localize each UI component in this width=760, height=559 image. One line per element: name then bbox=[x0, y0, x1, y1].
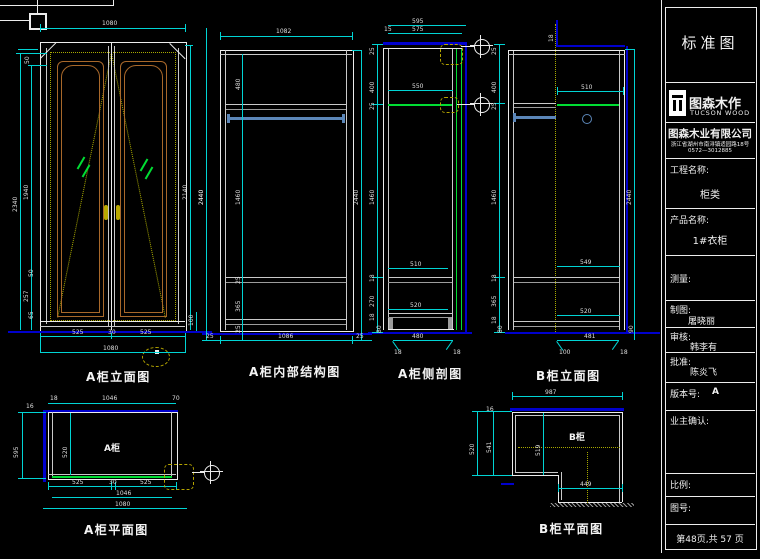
dim-text: 15 bbox=[384, 27, 392, 33]
dim-text: 365 bbox=[236, 301, 242, 312]
version-label: 版本号: bbox=[670, 387, 700, 400]
room-label-a: A柜 bbox=[104, 441, 120, 454]
drawing-label-elevation-b: B柜立面图 bbox=[536, 367, 601, 384]
shelf bbox=[388, 313, 452, 314]
door-handle bbox=[104, 205, 108, 220]
dim-text: 510 bbox=[410, 262, 421, 268]
dim-text: 1082 bbox=[276, 29, 291, 35]
dim-text: 520 bbox=[63, 447, 69, 458]
dim-text: 595 bbox=[14, 447, 20, 458]
dim-text: 90 bbox=[629, 325, 635, 333]
detail-callout-circle bbox=[204, 465, 220, 481]
dim-text: 520 bbox=[580, 309, 591, 315]
review-value: 韩李有 bbox=[690, 340, 717, 353]
dim-text: 1080 bbox=[103, 346, 118, 352]
dim-text: 1046 bbox=[116, 491, 131, 497]
shelf bbox=[514, 321, 619, 322]
dim-text: 1460 bbox=[236, 190, 242, 205]
dim-text: 65 bbox=[29, 311, 35, 319]
dim-text: 2440 bbox=[354, 190, 360, 205]
dim-text: 18 bbox=[492, 316, 498, 324]
hanging-rod bbox=[228, 117, 344, 120]
dim-text: 525 bbox=[140, 330, 151, 336]
drawing-label-section-a: A柜侧剖图 bbox=[398, 365, 463, 382]
detail-box bbox=[164, 464, 194, 490]
dim-text: 520 bbox=[470, 444, 476, 455]
dim-text: 18 bbox=[549, 34, 555, 42]
dim-text: 18 bbox=[394, 350, 402, 356]
cad-sheet: 1080 50 1940 2340 50 257 65 2140 2440 10… bbox=[0, 0, 760, 559]
brand-sub: TUCSON WOOD bbox=[690, 109, 750, 117]
dim-text: 1080 bbox=[115, 502, 130, 508]
shelf bbox=[226, 319, 346, 320]
dim-text: 25 bbox=[356, 334, 364, 340]
company-address: 浙江省湖州市南浔镇适园路18号 bbox=[665, 140, 755, 148]
dim-text: 18 bbox=[620, 350, 628, 356]
dim-text: 987 bbox=[545, 390, 556, 396]
dim-text: 30 bbox=[108, 330, 116, 336]
dim-text: 25 bbox=[370, 102, 376, 110]
company-phone: 0572—3012885 bbox=[665, 148, 755, 154]
dim-text: 18 bbox=[50, 396, 58, 402]
shelf bbox=[514, 103, 556, 104]
dim-text: 2440 bbox=[627, 190, 633, 205]
shelf bbox=[388, 277, 452, 278]
dim-text: 550 bbox=[412, 84, 423, 90]
center-dashed-line bbox=[555, 24, 556, 332]
dim-text: 525 bbox=[140, 480, 151, 486]
dim-text: 25 bbox=[236, 276, 242, 284]
approve-label: 批准: bbox=[670, 355, 691, 368]
shelf bbox=[226, 104, 346, 105]
dim-text: 16 bbox=[26, 404, 34, 410]
dim-text: 25 bbox=[370, 47, 376, 55]
floor-hatch bbox=[550, 503, 634, 507]
drawing-no-label: 图号: bbox=[670, 501, 691, 514]
dim-text: 365 bbox=[492, 296, 498, 307]
drawing-label-plan-a: A柜平面图 bbox=[84, 521, 149, 538]
review-label: 审核: bbox=[670, 330, 691, 343]
tucson-logo-icon bbox=[669, 90, 686, 116]
dim-text: 519 bbox=[536, 445, 542, 456]
shelf bbox=[514, 277, 619, 278]
owner-confirm-label: 业主确认: bbox=[670, 414, 709, 427]
hanging-rod bbox=[514, 116, 556, 119]
dim-text: 100 bbox=[189, 315, 195, 326]
measure-label: 测量: bbox=[670, 272, 691, 285]
dim-text: 80 bbox=[377, 325, 383, 333]
dim-text: 18 bbox=[453, 350, 461, 356]
dim-text: 25 bbox=[492, 102, 498, 110]
dim-text: 25 bbox=[236, 325, 242, 333]
dim-text: 30 bbox=[109, 480, 117, 486]
dim-text: 1940 bbox=[24, 185, 30, 200]
dim-text: 449 bbox=[580, 482, 591, 488]
detail-callout-circle bbox=[474, 97, 490, 113]
dim-text: 400 bbox=[492, 82, 498, 93]
dim-text: 480 bbox=[236, 79, 242, 90]
dim-text: 2440 bbox=[199, 190, 205, 205]
dim-text: 25 bbox=[492, 47, 498, 55]
version-value: A bbox=[712, 387, 719, 397]
detail-box bbox=[440, 44, 463, 65]
dim-text: 1080 bbox=[102, 21, 117, 27]
dim-text: 1046 bbox=[102, 396, 117, 402]
page-info: 第48页,共 57 页 bbox=[665, 532, 755, 545]
dim-text: 481 bbox=[584, 334, 595, 340]
product-value: 1#衣柜 bbox=[665, 232, 755, 247]
dim-text: 541 bbox=[487, 442, 493, 453]
dim-text: 2140 bbox=[183, 185, 189, 200]
dim-text: 18 bbox=[370, 274, 376, 282]
dim-text: 50 bbox=[25, 56, 31, 64]
dim-text: 18 bbox=[492, 274, 498, 282]
detail-box bbox=[440, 97, 459, 113]
company-name: 图森木业有限公司 bbox=[665, 126, 755, 141]
dim-text: 520 bbox=[410, 303, 421, 309]
dim-text: 510 bbox=[581, 85, 592, 91]
rod-end-circle bbox=[582, 114, 592, 124]
door-handle bbox=[116, 205, 120, 220]
dim-text: 1460 bbox=[492, 190, 498, 205]
dim-text: 1460 bbox=[370, 190, 376, 205]
dim-text: 25 bbox=[206, 334, 214, 340]
approve-value: 陈炎飞 bbox=[690, 365, 717, 378]
dim-text: 575 bbox=[412, 27, 423, 33]
floor-line bbox=[505, 332, 660, 334]
sheet-title: 标准图 bbox=[665, 32, 755, 53]
dim-text: 400 bbox=[370, 82, 376, 93]
dim-text: 480 bbox=[412, 334, 423, 340]
dim-text: 18 bbox=[370, 313, 376, 321]
dim-text: 1086 bbox=[278, 334, 293, 340]
drawing-label-structure-a: A柜内部结构图 bbox=[249, 363, 341, 380]
project-value: 柜类 bbox=[665, 186, 755, 201]
dim-text: 100 bbox=[559, 350, 570, 356]
dim-text: 257 bbox=[24, 291, 30, 302]
dim-text: 50 bbox=[29, 269, 35, 277]
draft-value: 屠晓丽 bbox=[688, 314, 715, 327]
dim-text: 525 bbox=[72, 330, 83, 336]
dim-text: 2340 bbox=[13, 197, 19, 212]
scale-label: 比例: bbox=[670, 478, 691, 491]
drawing-label-plan-b: B柜平面图 bbox=[539, 520, 604, 537]
dim-text: 70 bbox=[172, 396, 180, 402]
detail-callout-circle bbox=[474, 39, 490, 55]
dim-text: 549 bbox=[580, 260, 591, 266]
drawing-label-elevation-a: A柜立面图 bbox=[86, 368, 151, 385]
product-label: 产品名称: bbox=[670, 213, 709, 226]
dim-text: 595 bbox=[412, 19, 423, 25]
dim-text: 525 bbox=[72, 480, 83, 486]
shelf bbox=[226, 277, 346, 278]
dim-text: 270 bbox=[370, 296, 376, 307]
room-label-b: B柜 bbox=[569, 430, 585, 443]
dim-text: 80 bbox=[498, 325, 504, 333]
project-label: 工程名称: bbox=[670, 163, 709, 176]
